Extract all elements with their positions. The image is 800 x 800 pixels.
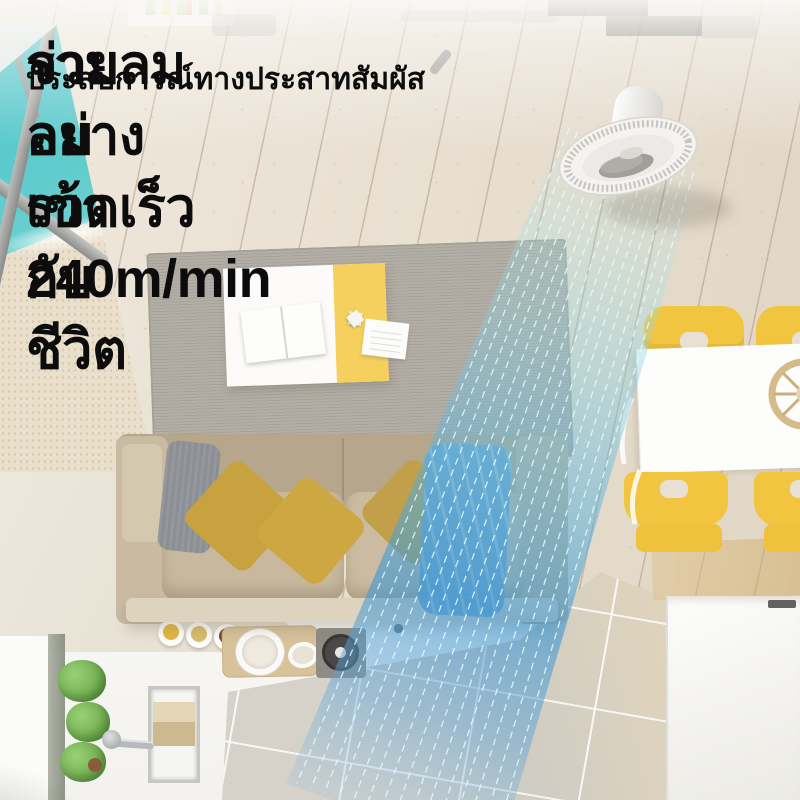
balcony-floor	[0, 636, 50, 800]
av-receiver	[606, 16, 702, 36]
dining-set	[608, 298, 800, 560]
subtitle: ประสบการณ์ทางประสาทสัมผัส	[26, 56, 425, 103]
plant-pot	[88, 758, 102, 772]
door-frame	[48, 634, 65, 800]
chair-slot	[660, 480, 688, 498]
sink-cutting-board	[153, 702, 195, 746]
chair-slot	[790, 480, 800, 498]
dining-chair-bottom-right	[754, 472, 800, 526]
sofa	[116, 428, 568, 626]
dining-chair-bottom-left	[624, 472, 728, 526]
chair-seat	[764, 524, 800, 552]
potted-plant	[58, 660, 106, 702]
kitchen-island	[666, 596, 800, 800]
tv-screen	[548, 0, 648, 16]
island-sink-slot	[768, 600, 796, 608]
dining-chair-top-left	[644, 306, 744, 352]
blue-blanket	[418, 442, 513, 618]
book-spine	[280, 307, 288, 359]
speaker-right	[698, 16, 756, 38]
fan-promo-image: จ่ายลมอย่างรวดเร็ว 240m/min รวมลมเข้ากับ…	[0, 0, 800, 800]
burner-center	[335, 647, 346, 658]
kitchen-sink	[148, 686, 200, 783]
postcard	[361, 319, 409, 360]
sofa-arm-cushion	[122, 444, 162, 542]
chair-seat	[636, 524, 722, 552]
stove	[316, 628, 366, 678]
soundbar	[400, 10, 560, 22]
book-spines	[146, 0, 230, 15]
dinner-plate	[236, 629, 284, 675]
paper-star-decor	[348, 311, 363, 326]
rattan-tray	[760, 356, 800, 436]
faucet-head	[102, 730, 121, 749]
